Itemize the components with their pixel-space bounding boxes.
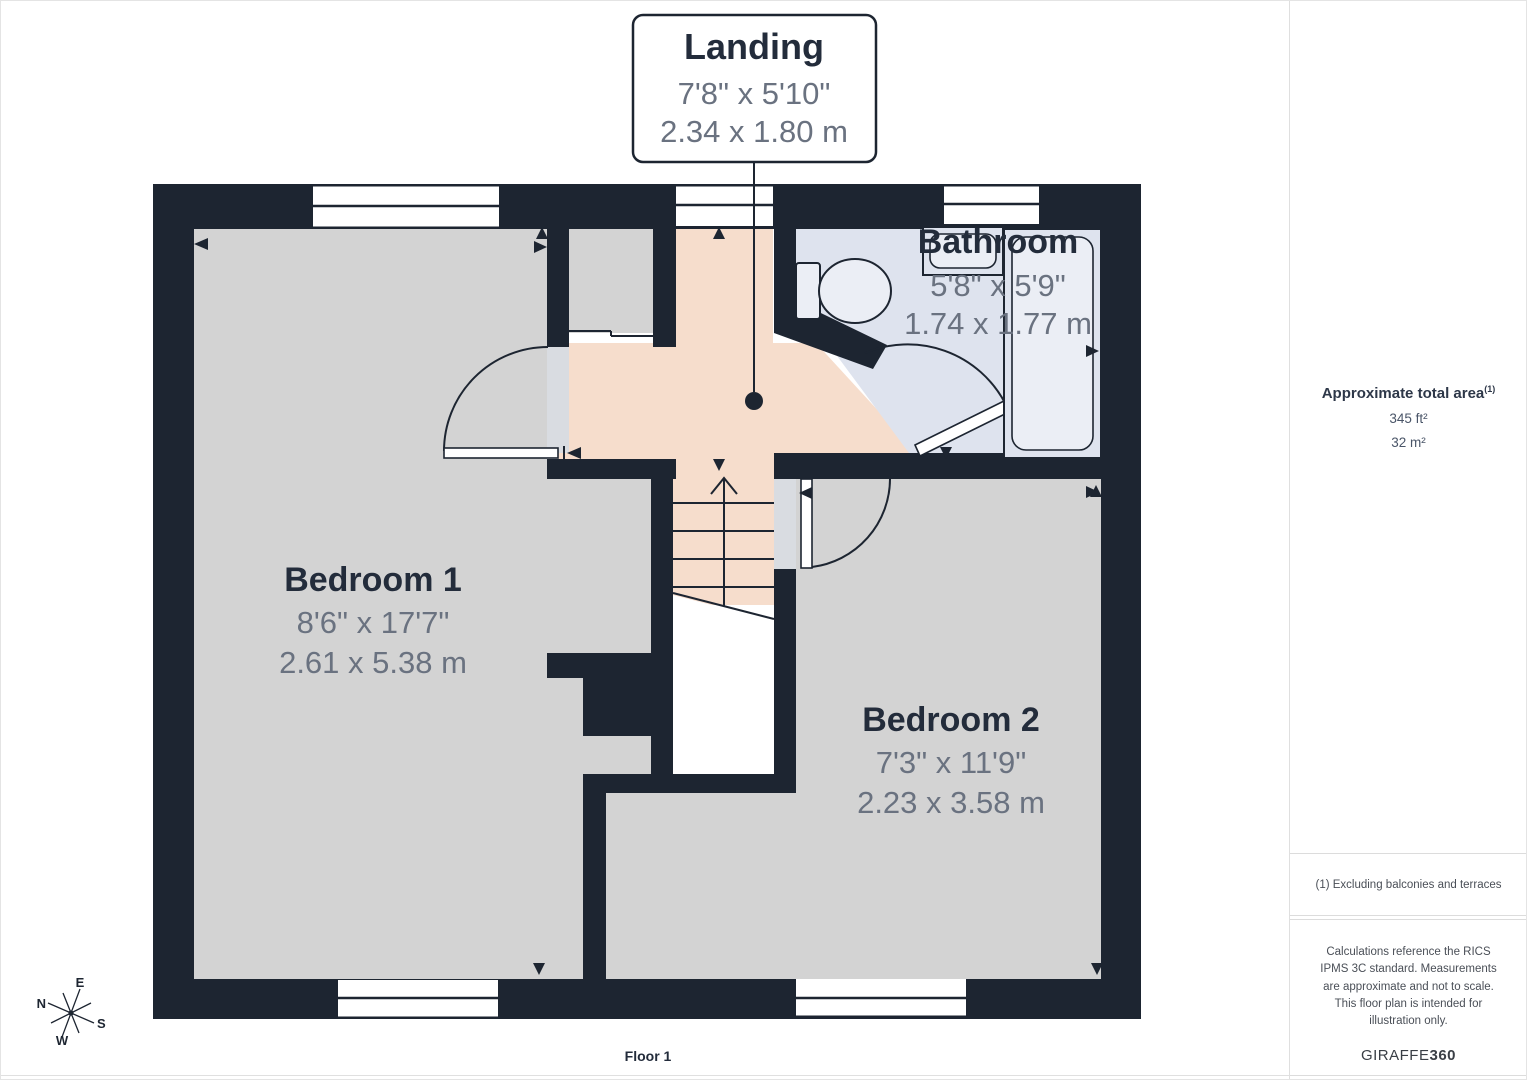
compass-icon: N E S W <box>37 975 106 1048</box>
floorplan-panel: Bedroom 1 8'6" x 17'7" 2.61 x 5.38 m Bed… <box>1 1 1289 1076</box>
window-landing-top <box>676 185 773 226</box>
wall-chimney-block <box>583 678 651 736</box>
window-bedroom1-bottom <box>338 980 498 1018</box>
wall-exterior-bottom <box>153 979 1141 1019</box>
landing-callout-dot <box>745 392 763 410</box>
wall-exterior-right <box>1101 184 1141 1019</box>
wall-bedroom1-bedroom2 <box>583 793 606 979</box>
compass-n: N <box>37 996 46 1011</box>
bathroom-metric: 1.74 x 1.77 m <box>904 306 1092 341</box>
info-sidebar: Approximate total area(1) 345 ft² 32 m² … <box>1289 1 1527 1080</box>
toilet-icon <box>796 259 891 323</box>
bedroom1-imperial: 8'6" x 17'7" <box>297 605 450 640</box>
total-area-m: 32 m² <box>1290 435 1527 450</box>
wall-cupboard-landing <box>653 224 676 347</box>
bedroom1-door-leaf <box>444 448 558 458</box>
wall-nook-south <box>547 653 651 678</box>
bathroom-title: Bathroom <box>918 223 1079 261</box>
bedroom1-metric: 2.61 x 5.38 m <box>279 645 467 680</box>
compass-s: S <box>97 1016 106 1031</box>
wall-exterior-left <box>153 184 194 1019</box>
floorplan-drawing: Bedroom 1 8'6" x 17'7" 2.61 x 5.38 m Bed… <box>1 1 1289 1075</box>
wall-stair-right <box>774 569 796 793</box>
compass-e: E <box>76 975 85 990</box>
landing-imperial: 7'8" x 5'10" <box>678 76 831 111</box>
wall-landing-south <box>547 459 676 479</box>
bedroom2-door-threshold <box>774 479 796 569</box>
bedroom2-metric: 2.23 x 3.58 m <box>857 785 1045 820</box>
understair-void <box>673 595 774 774</box>
bedroom1-door-threshold <box>547 347 569 453</box>
bedroom2-title: Bedroom 2 <box>862 701 1040 739</box>
wall-stair-left <box>651 479 673 774</box>
total-area-block: Approximate total area(1) 345 ft² 32 m² <box>1290 384 1527 450</box>
floorplan-page: Bedroom 1 8'6" x 17'7" 2.61 x 5.38 m Bed… <box>0 0 1527 1080</box>
landing-floor-top-arm <box>676 226 773 343</box>
window-bedroom1-top <box>313 185 499 228</box>
bathtub-icon <box>1004 229 1101 458</box>
window-bedroom2-bottom <box>796 979 966 1017</box>
landing-metric: 2.34 x 1.80 m <box>660 114 848 149</box>
giraffe360-logo: GIRAFFE360 <box>1314 1047 1503 1064</box>
compass-w: W <box>56 1033 69 1048</box>
footnote-box: (1) Excluding balconies and terraces <box>1290 853 1527 916</box>
wall-bedroom1-cupboard <box>547 224 569 347</box>
landing-title: Landing <box>684 26 824 67</box>
total-area-ft: 345 ft² <box>1290 411 1527 426</box>
total-area-superscript: (1) <box>1484 384 1495 394</box>
bathroom-imperial: 5'8" x 5'9" <box>930 268 1066 303</box>
total-area-title: Approximate total area(1) <box>1290 384 1527 402</box>
window-bathroom-top <box>944 185 1039 224</box>
bedroom2-imperial: 7'3" x 11'9" <box>876 745 1026 780</box>
disclaimer-text: Calculations reference the RICS IPMS 3C … <box>1314 944 1503 1030</box>
wall-stair-bottom <box>583 774 796 793</box>
floor-caption: Floor 1 <box>625 1048 672 1064</box>
bedroom1-title: Bedroom 1 <box>284 561 462 599</box>
bedroom1-floor <box>194 229 547 979</box>
disclaimer-box: Calculations reference the RICS IPMS 3C … <box>1290 919 1527 1076</box>
cupboard-floor <box>569 224 653 333</box>
footnote-text: (1) Excluding balconies and terraces <box>1301 879 1515 891</box>
